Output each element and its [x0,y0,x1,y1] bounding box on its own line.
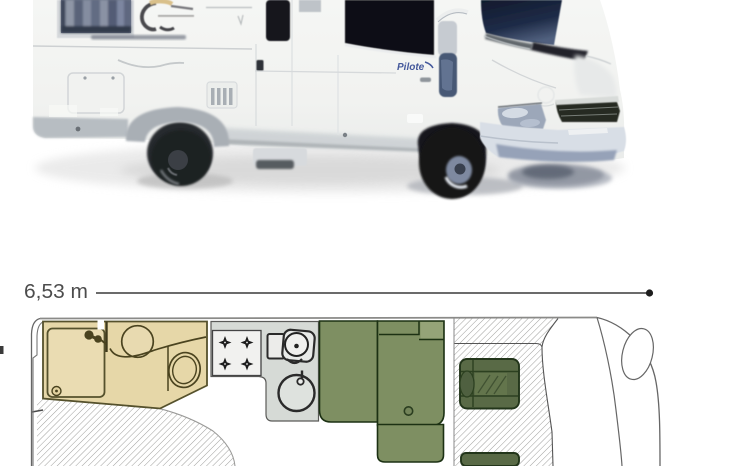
svg-text:Pilote: Pilote [397,62,425,73]
svg-text:6,53 m: 6,53 m [24,281,88,303]
